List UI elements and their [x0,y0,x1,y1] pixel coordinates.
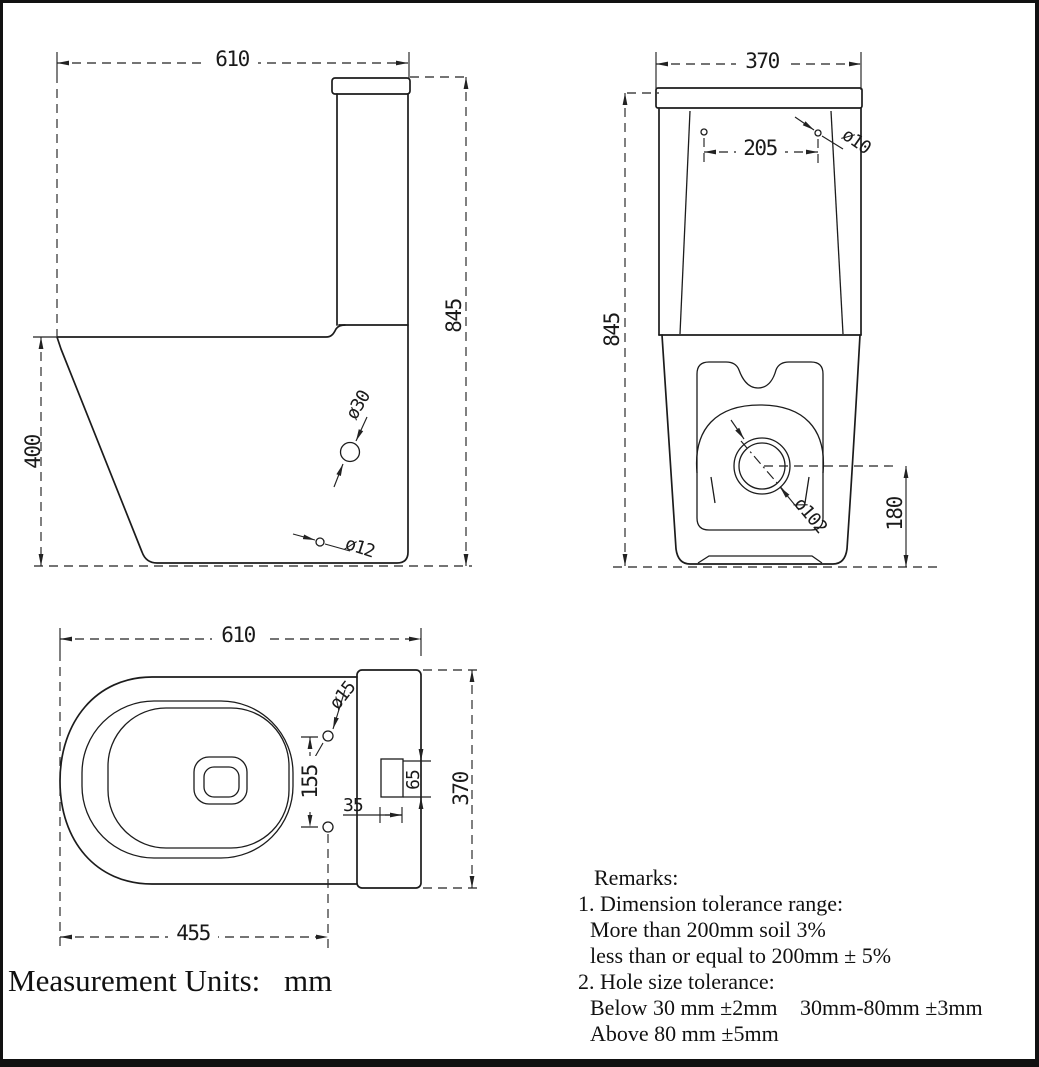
top-hole-spacing-label: 155 [298,765,322,798]
side-view-toilet-outline [57,78,410,563]
units-value: mm [284,963,332,998]
top-depth-label: 370 [449,771,473,805]
top-hole-spacing-dimension: 155 [298,737,333,948]
cistern-lid-side [332,78,410,94]
front-hole-label: ø10 [838,124,874,158]
top-depth-dimension: 370 [423,670,480,888]
remarks-line5a: Below 30 mm ±2mm [590,995,777,1020]
front-width-dimension: 370 [656,49,861,90]
remarks-line4: 2. Hole size tolerance: [578,969,775,994]
outlet-height-label: 180 [883,496,907,530]
top-view: 610 ø15 155 35 [60,621,480,948]
front-hole-callout: ø10 [795,117,874,159]
tank-hole-left [701,129,707,135]
front-view: 370 205 ø10 845 ø102 [600,49,937,567]
top-view-toilet-outline [60,670,421,888]
top-hole-label: ø15 [325,677,360,713]
units-label: Measurement Units: [8,963,260,998]
front-width-label: 370 [745,49,779,73]
bowl-profile [57,94,408,563]
side-height-dimension: 845 [410,77,470,566]
tank-hole-right [815,130,821,136]
top-width-label: 610 [221,623,255,647]
slot-height-label: 65 [403,770,424,790]
inlet-slot [381,759,403,797]
remarks-line2: More than 200mm soil 3% [590,917,826,942]
seat-outer-ring [82,701,293,858]
seat-hole-circle [341,443,360,462]
bowl-top-surface [57,325,345,337]
front-hole-spacing-dimension: 205 [701,129,821,163]
side-seat-hole-callout: ø30 [334,387,375,487]
drawing-sheet: 610 845 400 ø30 ø12 [0,0,1039,1067]
top-hole-callout: ø15 [315,677,360,757]
side-view: 610 845 400 ø30 ø12 [21,47,472,566]
units-note: Measurement Units: mm [8,963,332,998]
seat-hole-label: ø30 [342,387,375,423]
cistern-lid-front [656,88,862,108]
side-bowl-height-dimension: 400 [21,337,58,566]
remarks-line5b: 30mm-80mm ±3mm [800,995,983,1020]
remarks-block: Remarks: 1. Dimension tolerance range: M… [578,865,983,1046]
side-width-dimension: 610 [57,47,409,336]
outlet-label: ø102 [790,494,831,538]
side-height-label: 845 [442,299,466,332]
front-hole-spacing-label: 205 [743,136,776,160]
seat-inner-ring [108,708,289,848]
side-fixing-hole-callout: ø12 [293,533,377,562]
remarks-line1: 1. Dimension tolerance range: [578,891,843,916]
fixing-hole-label: ø12 [342,533,377,562]
pedestal-foot-notch [698,556,822,563]
remarks-title: Remarks: [594,865,678,890]
front-height-label: 845 [600,313,624,346]
side-bowl-height-label: 400 [21,434,45,468]
bowl-length-label: 455 [176,921,209,945]
slot-height-dimension: 65 [403,744,431,814]
slot-width-label: 35 [343,795,363,816]
slot-offset-dimension: 35 [343,795,402,823]
seat-fix-hole-top [323,731,333,741]
front-height-dimension: 845 [600,93,659,566]
outlet-inner-circle [739,443,785,489]
seat-fix-hole-bottom [323,822,333,832]
fixing-hole-circle [316,538,324,546]
remarks-line6: Above 80 mm ±5mm [590,1021,779,1046]
technical-drawing-canvas: 610 845 400 ø30 ø12 [3,3,1035,1059]
remarks-line3: less than or equal to 200mm ± 5% [590,943,891,968]
side-width-label: 610 [215,47,249,71]
bowl-length-dimension: 455 [60,920,328,945]
drain-inner [204,767,239,797]
